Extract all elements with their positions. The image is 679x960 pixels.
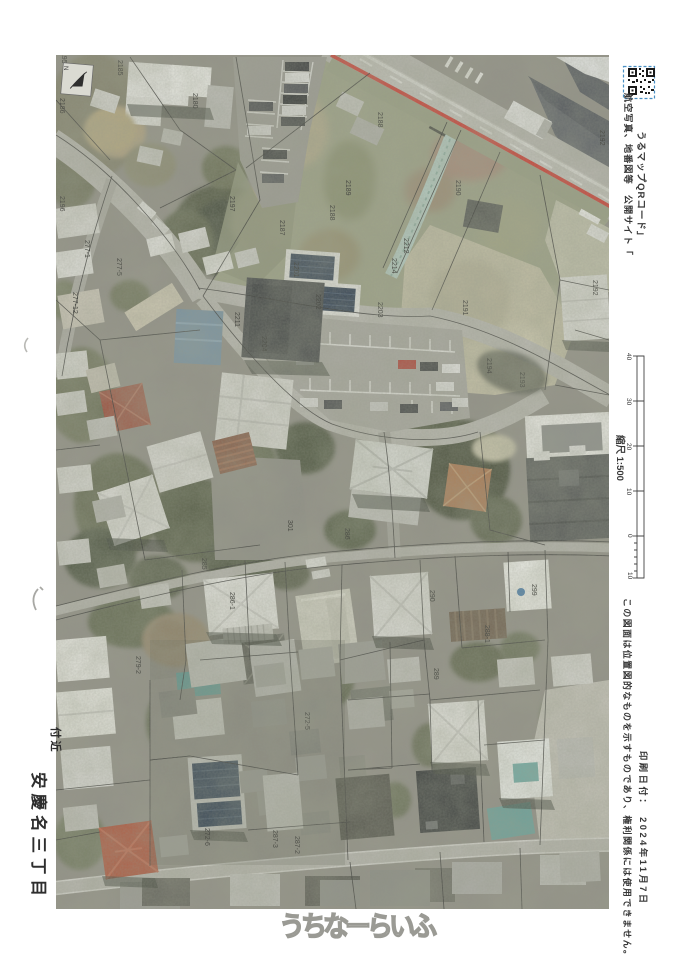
svg-text:30: 30 <box>625 398 632 406</box>
svg-text:N: N <box>62 66 68 70</box>
svg-text:0: 0 <box>626 534 633 538</box>
svg-text:10: 10 <box>626 572 633 580</box>
svg-text:40: 40 <box>625 353 632 361</box>
svg-text:10: 10 <box>625 488 632 496</box>
